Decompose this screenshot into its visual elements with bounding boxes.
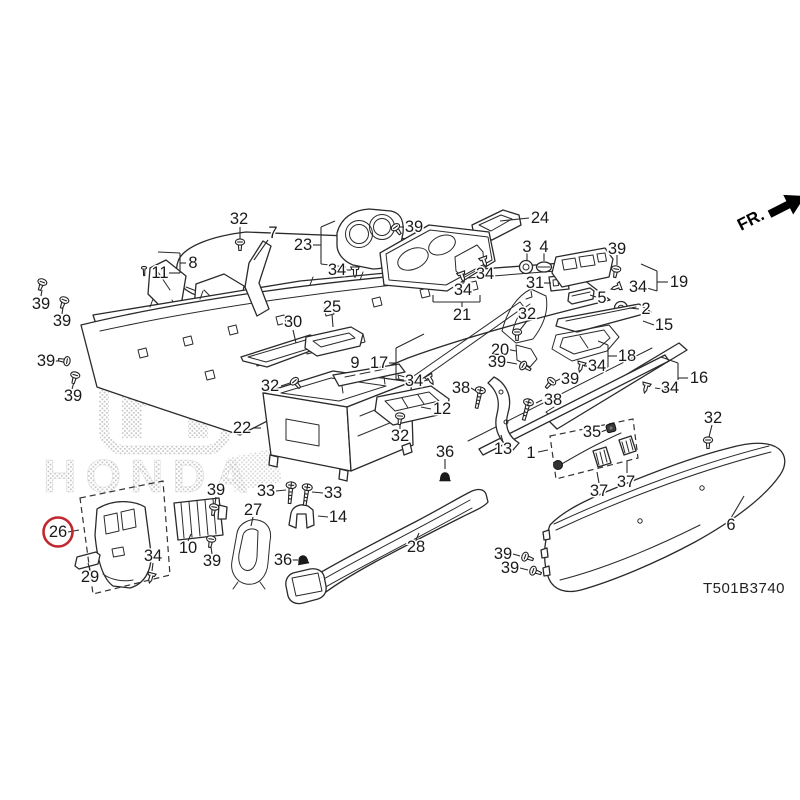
leader-line (506, 362, 517, 364)
part-number-label-25: 25 (323, 298, 341, 316)
part-number-label-34: 34 (629, 278, 647, 296)
part-number-label-37: 37 (617, 473, 635, 491)
part-number-label-11: 11 (151, 264, 168, 282)
fastener-clip-icon (640, 382, 651, 394)
part-29-cap (75, 552, 100, 569)
part-number-label-32: 32 (230, 210, 248, 228)
fastener-cone-icon (439, 473, 450, 481)
part-number-label-26: 26 (49, 523, 67, 541)
part-number-label-39: 39 (608, 240, 626, 258)
leader-line (641, 264, 657, 271)
part-27-pedestal (232, 520, 271, 589)
leader-line (643, 321, 654, 325)
part-6-side-lining (545, 443, 785, 591)
fastener-screw-icon (529, 565, 543, 578)
part-number-label-32: 32 (704, 409, 722, 427)
part-3-knob (520, 261, 533, 274)
part-number-label-37: 37 (590, 482, 608, 500)
leader-line (321, 221, 335, 227)
part-number-label-31: 31 (526, 274, 544, 292)
part-number-label-22: 22 (233, 419, 251, 437)
fastener-screw-icon (205, 535, 216, 548)
part-number-label-19: 19 (670, 273, 688, 291)
fastener-bolt-icon (519, 398, 534, 421)
diagram-code: T501B3740 (703, 580, 785, 597)
leader-line (312, 492, 323, 493)
part-number-label-39: 39 (53, 312, 71, 330)
part-number-label-39: 39 (501, 559, 519, 577)
fr-label: FR. (734, 205, 767, 234)
leader-line (276, 490, 286, 491)
fastener-cone-icon (297, 555, 309, 565)
leader-line (556, 379, 560, 381)
fastener-screw-icon (69, 371, 81, 385)
part-number-label-24: 24 (531, 209, 549, 227)
part-number-label-2: 2 (641, 300, 650, 318)
part-number-label-23: 23 (294, 236, 312, 254)
leader-line (538, 450, 548, 452)
front-direction-indicator: FR. (734, 184, 800, 239)
part-number-label-39: 39 (561, 370, 579, 388)
part-number-label-21: 21 (453, 306, 471, 324)
fastener-bolt-icon (285, 481, 297, 503)
part-number-label-33: 33 (324, 484, 342, 502)
part-number-label-15: 15 (655, 316, 673, 334)
part-number-label-17: 17 (370, 354, 388, 372)
part-number-label-10: 10 (179, 539, 197, 557)
part-number-label-39: 39 (488, 353, 506, 371)
fastener-conn-icon (606, 423, 617, 433)
part-number-label-39: 39 (32, 295, 50, 313)
fastener-screw-icon (35, 278, 48, 292)
part-number-label-14: 14 (329, 508, 347, 526)
part-28-duct-mouth (286, 569, 326, 604)
part-number-label-7: 7 (268, 224, 277, 242)
part-number-label-39: 39 (405, 218, 423, 236)
part-26-rear-panel (95, 502, 151, 588)
part-number-label-6: 6 (726, 516, 735, 534)
leader-line (601, 430, 606, 432)
leader-line (158, 252, 180, 253)
part-number-label-38: 38 (452, 379, 470, 397)
part-number-label-34: 34 (328, 261, 346, 279)
part-number-label-39: 39 (207, 481, 225, 499)
fastener-screw-icon (512, 329, 521, 341)
part-number-label-32: 32 (391, 427, 409, 445)
part-number-label-18: 18 (618, 347, 636, 365)
fastener-screw-icon (610, 265, 621, 278)
fastener-screw-icon (57, 296, 70, 310)
part-number-label-38: 38 (544, 391, 562, 409)
part-number-label-33: 33 (257, 482, 275, 500)
fr-arrow-icon (765, 186, 800, 224)
part-number-label-36: 36 (436, 443, 454, 461)
part-number-label-39: 39 (64, 387, 82, 405)
leader-line (520, 568, 528, 570)
leader-line (424, 380, 428, 381)
fastener-screw-icon (58, 355, 71, 366)
part-number-label-5: 5 (597, 289, 606, 307)
part-number-label-34: 34 (588, 357, 606, 375)
part-number-label-34: 34 (454, 281, 472, 299)
part-number-label-28: 28 (407, 538, 425, 556)
part-number-label-32: 32 (518, 305, 536, 323)
part-number-label-30: 30 (284, 313, 302, 331)
fastener-screw-icon (521, 551, 535, 564)
exploded-parts-diagram: HONDA (0, 0, 800, 800)
part-number-label-34: 34 (476, 265, 494, 283)
part-number-label-29: 29 (81, 568, 99, 586)
leader-line (318, 516, 328, 517)
part-number-label-3: 3 (522, 238, 531, 256)
part-number-label-1: 1 (526, 444, 535, 462)
part-number-label-39: 39 (203, 552, 221, 570)
fastener-screw-icon (703, 437, 712, 449)
fastener-pin-icon (141, 266, 146, 275)
part-number-label-4: 4 (539, 238, 548, 256)
part-number-label-39: 39 (37, 352, 55, 370)
leader-line (647, 288, 657, 291)
part-number-label-27: 27 (244, 501, 262, 519)
part-number-label-34: 34 (144, 547, 162, 565)
part-number-label-16: 16 (690, 369, 708, 387)
leader-line (536, 400, 542, 403)
fastener-clip-icon (610, 282, 622, 293)
parts-diagram-page: HONDA (0, 0, 800, 800)
part-number-label-12: 12 (433, 400, 451, 418)
part-14-bracket (289, 505, 314, 528)
part-number-label-34: 34 (661, 379, 679, 397)
part-number-label-32: 32 (261, 377, 279, 395)
part-number-label-9: 9 (350, 354, 359, 372)
part-number-label-8: 8 (188, 254, 197, 272)
part-number-label-35: 35 (583, 423, 601, 441)
fastener-screw-icon (543, 376, 558, 391)
part-number-label-34: 34 (405, 372, 423, 390)
leader-line (513, 554, 520, 556)
part-number-label-36: 36 (274, 551, 292, 569)
part-10-vent-tab (218, 505, 227, 519)
part-35-grommet (554, 461, 563, 470)
part-37-pad-a (593, 447, 611, 467)
part-19-switch-panel (552, 248, 613, 287)
fastener-bolt-icon (300, 483, 313, 506)
part-number-label-13: 13 (494, 440, 512, 458)
